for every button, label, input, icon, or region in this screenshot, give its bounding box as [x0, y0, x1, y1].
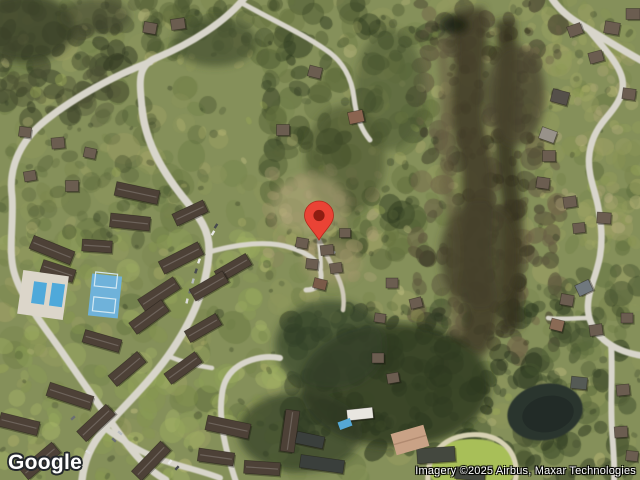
map-pin-icon[interactable] [305, 201, 334, 244]
map-overlay [0, 0, 640, 480]
pin-dot [313, 210, 324, 221]
google-logo[interactable]: Google [8, 451, 82, 475]
imagery-attribution: Imagery ©2025 Airbus, Maxar Technologies [415, 465, 636, 477]
satellite-map[interactable]: Google Imagery ©2025 Airbus, Maxar Techn… [0, 0, 640, 480]
